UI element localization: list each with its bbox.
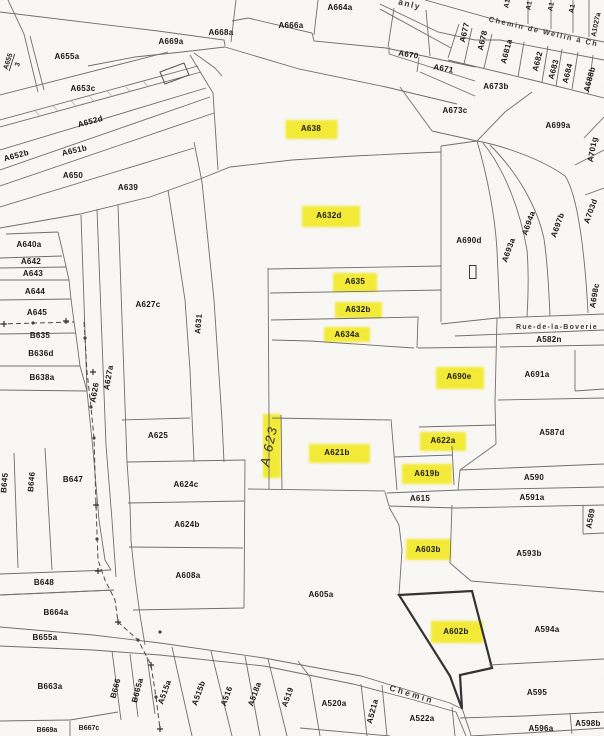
svg-text:A673b: A673b bbox=[483, 82, 509, 91]
svg-text:A522a: A522a bbox=[409, 714, 434, 723]
svg-text:A645: A645 bbox=[27, 308, 48, 317]
svg-text:A619b: A619b bbox=[414, 469, 440, 478]
svg-text:B663a: B663a bbox=[37, 682, 62, 691]
svg-text:B655a: B655a bbox=[32, 633, 57, 642]
svg-text:A691a: A691a bbox=[524, 370, 549, 379]
svg-text:B669a: B669a bbox=[37, 727, 58, 734]
svg-text:A520a: A520a bbox=[321, 699, 346, 708]
svg-text:A666a: A666a bbox=[278, 21, 303, 30]
svg-text:A639: A639 bbox=[118, 183, 139, 192]
svg-text:A673c: A673c bbox=[442, 106, 467, 115]
svg-text:A627c: A627c bbox=[135, 300, 160, 309]
svg-text:A634a: A634a bbox=[334, 330, 359, 339]
svg-text:B664a: B664a bbox=[43, 608, 68, 617]
svg-text:A595: A595 bbox=[527, 688, 548, 697]
svg-text:A632b: A632b bbox=[345, 305, 371, 314]
svg-text:A622a: A622a bbox=[430, 436, 455, 445]
svg-text:A598b: A598b bbox=[575, 719, 601, 728]
svg-text:A655a: A655a bbox=[54, 52, 79, 61]
svg-text:B635: B635 bbox=[30, 331, 51, 340]
svg-text:A668a: A668a bbox=[208, 28, 233, 37]
svg-text:A690d: A690d bbox=[456, 236, 482, 245]
svg-text:A642: A642 bbox=[21, 257, 42, 266]
svg-text:A593b: A593b bbox=[516, 549, 542, 558]
svg-text:A590: A590 bbox=[524, 473, 545, 482]
svg-text:A594a: A594a bbox=[534, 625, 559, 634]
svg-text:A582n: A582n bbox=[536, 335, 562, 344]
svg-text:A669a: A669a bbox=[158, 37, 183, 46]
svg-text:A699a: A699a bbox=[545, 121, 570, 130]
svg-text:A624c: A624c bbox=[173, 480, 198, 489]
svg-text:A605a: A605a bbox=[308, 590, 333, 599]
svg-text:A690e: A690e bbox=[446, 372, 471, 381]
svg-text:A632d: A632d bbox=[316, 211, 342, 220]
svg-text:A664a: A664a bbox=[327, 3, 352, 12]
svg-text:A602b: A602b bbox=[443, 627, 469, 636]
svg-text:B667c: B667c bbox=[79, 725, 100, 732]
svg-text:B646: B646 bbox=[26, 471, 37, 492]
svg-text:A621b: A621b bbox=[324, 448, 350, 457]
svg-text:B636d: B636d bbox=[28, 349, 54, 358]
svg-text:B648: B648 bbox=[34, 578, 55, 587]
svg-text:A615: A615 bbox=[410, 494, 431, 503]
svg-text:A631: A631 bbox=[193, 313, 204, 334]
svg-text:A608a: A608a bbox=[175, 571, 200, 580]
svg-text:A643: A643 bbox=[23, 269, 44, 278]
svg-text:A596a: A596a bbox=[528, 724, 553, 733]
svg-text:A650: A650 bbox=[63, 171, 84, 180]
svg-text:A635: A635 bbox=[345, 277, 366, 286]
svg-text:B638a: B638a bbox=[29, 373, 54, 382]
svg-text:A644: A644 bbox=[25, 287, 46, 296]
svg-text:A587d: A587d bbox=[539, 428, 565, 437]
svg-text:A591a: A591a bbox=[519, 493, 544, 502]
svg-text:A624b: A624b bbox=[174, 520, 200, 529]
svg-text:A653c: A653c bbox=[70, 84, 95, 93]
svg-text:A625: A625 bbox=[148, 431, 169, 440]
svg-text:A638: A638 bbox=[301, 124, 322, 133]
svg-text:B647: B647 bbox=[63, 475, 84, 484]
svg-text:A640a: A640a bbox=[16, 240, 41, 249]
svg-text:Rue-de-la-Boverie: Rue-de-la-Boverie bbox=[516, 324, 598, 331]
svg-text:A603b: A603b bbox=[415, 545, 441, 554]
